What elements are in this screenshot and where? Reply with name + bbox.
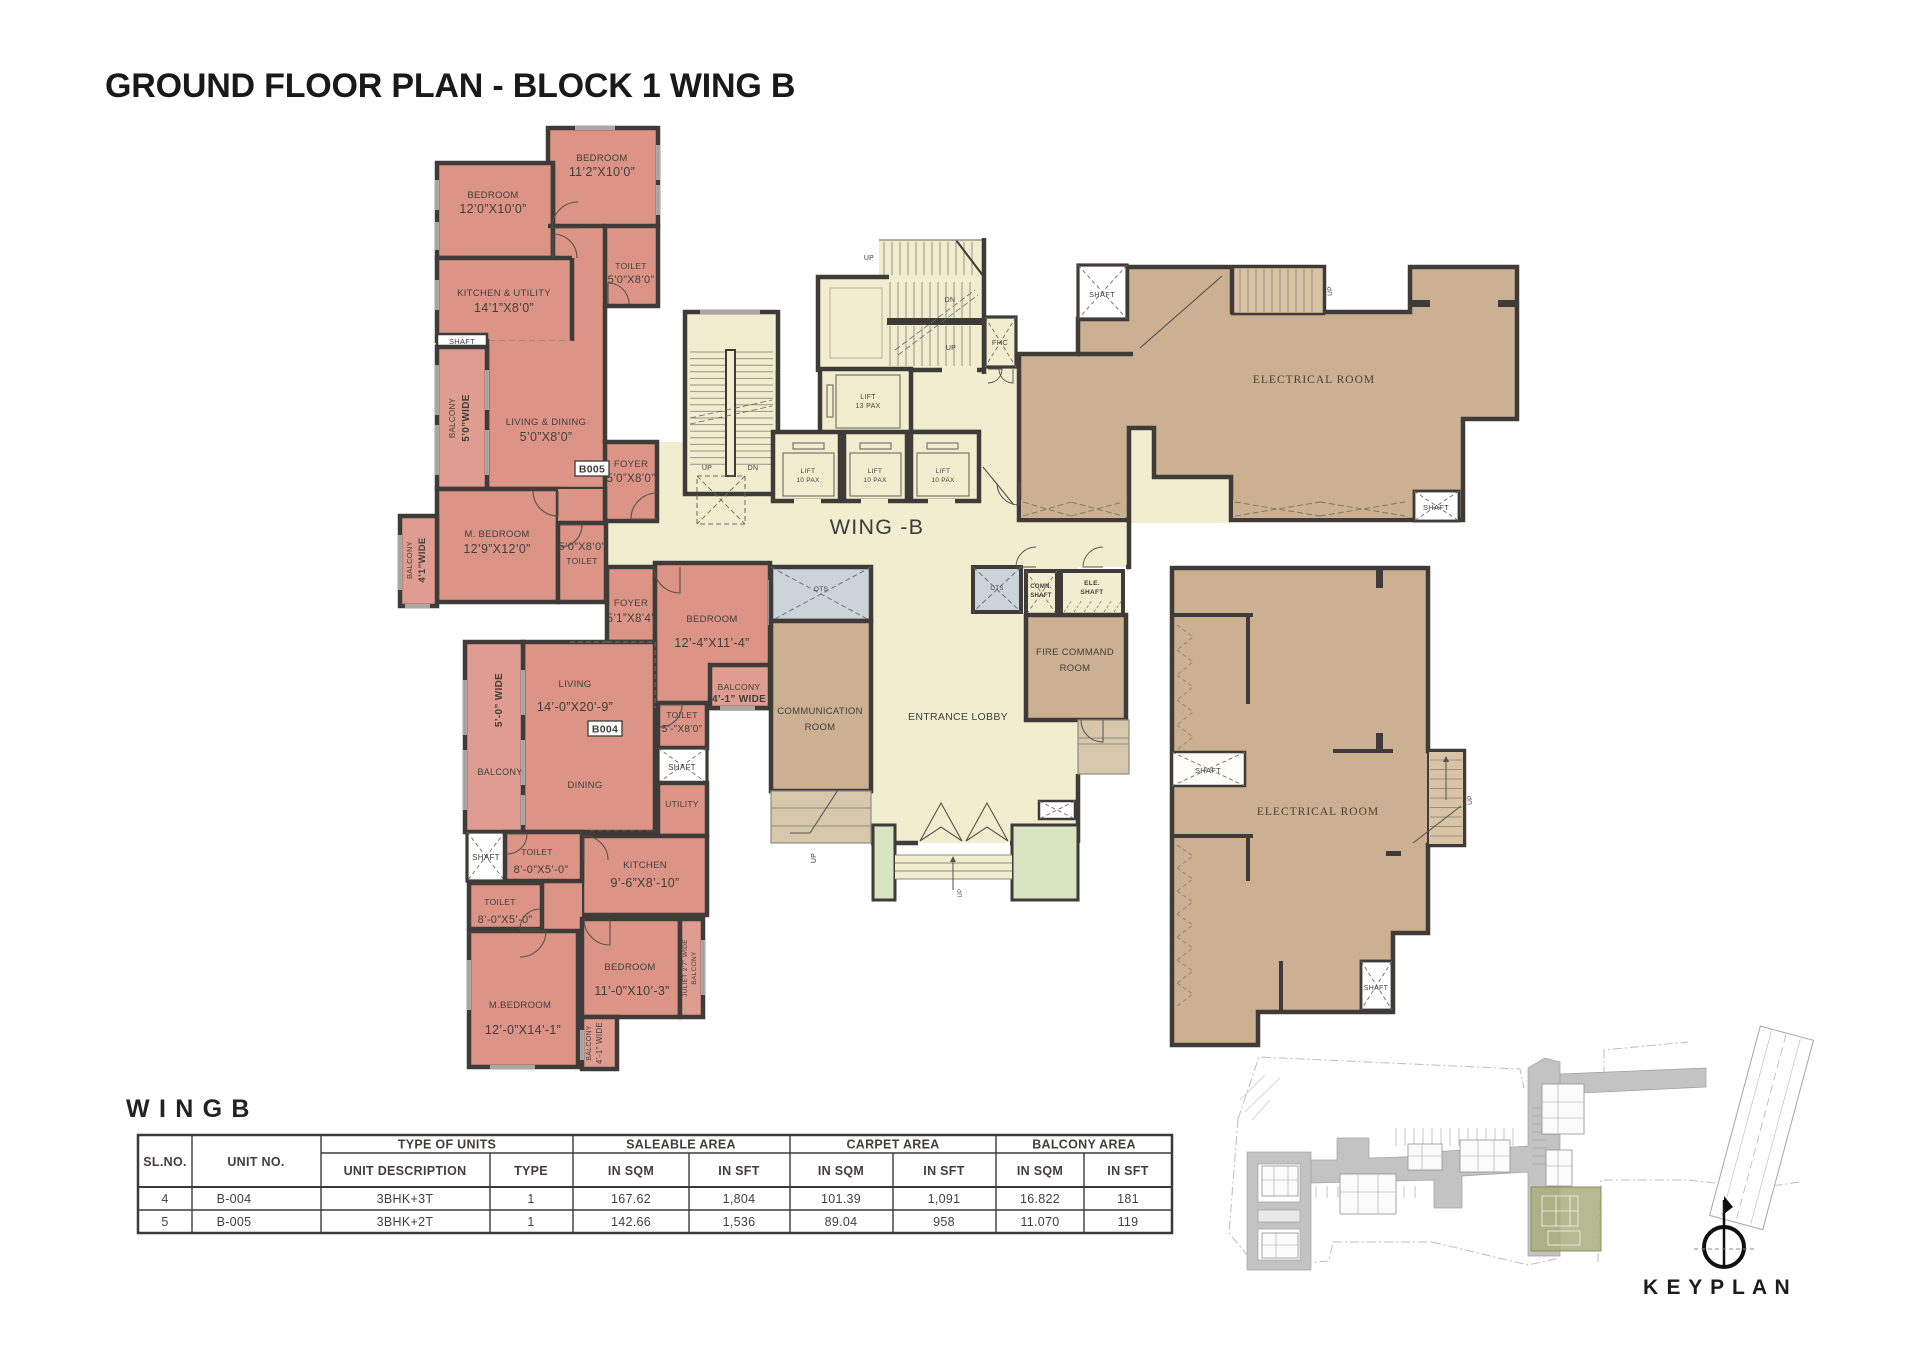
svg-text:LIVING: LIVING [559,679,592,690]
svg-text:ENTRANCE LOBBY: ENTRANCE LOBBY [908,711,1008,723]
svg-text:9’-6”X8’-10”: 9’-6”X8’-10” [611,876,680,890]
svg-text:1: 1 [527,1192,534,1206]
svg-text:TOILET: TOILET [615,261,646,271]
svg-text:TYPE OF UNITS: TYPE OF UNITS [398,1138,496,1152]
svg-text:UP: UP [864,255,874,262]
svg-text:SHAFT: SHAFT [1364,985,1389,992]
svg-text:BALCONY: BALCONY [586,1025,593,1061]
svg-text:IN SQM: IN SQM [818,1164,864,1178]
svg-text:UP: UP [811,853,818,863]
svg-text:TOILET: TOILET [521,847,552,857]
svg-text:10 PAX: 10 PAX [863,477,887,484]
svg-text:SALEABLE AREA: SALEABLE AREA [626,1138,736,1152]
svg-text:BEDROOM: BEDROOM [576,153,627,164]
svg-text:LIFT: LIFT [801,468,816,475]
svg-text:16.822: 16.822 [1020,1192,1060,1206]
svg-text:1,091: 1,091 [928,1192,961,1206]
svg-text:DN: DN [748,465,759,472]
svg-text:SHAFT: SHAFT [1080,589,1103,596]
svg-text:KITCHEN: KITCHEN [623,860,667,871]
svg-text:5’0”X8’0”: 5’0”X8’0” [520,430,573,444]
svg-text:8’-0”X5’-0”: 8’-0”X5’-0” [478,914,533,926]
svg-text:1: 1 [527,1215,534,1229]
svg-text:1,804: 1,804 [723,1192,756,1206]
svg-text:10 PAX: 10 PAX [796,477,820,484]
svg-text:ELE.: ELE. [1084,580,1100,587]
svg-text:142.66: 142.66 [611,1215,651,1229]
svg-text:4: 4 [161,1192,168,1206]
svg-text:5’-0” WIDE: 5’-0” WIDE [494,673,505,727]
svg-text:SHAFT: SHAFT [1089,290,1115,299]
svg-text:FIRE COMMAND: FIRE COMMAND [1036,647,1114,658]
svg-text:TOILET: TOILET [484,897,515,907]
svg-text:BEDROOM: BEDROOM [604,962,655,973]
svg-text:UNIT NO.: UNIT NO. [227,1155,284,1169]
svg-text:5’0”WIDE: 5’0”WIDE [461,394,472,441]
svg-text:11’-0”X10’-3”: 11’-0”X10’-3” [594,984,669,998]
svg-text:LIFT: LIFT [860,394,876,401]
svg-text:SHAFT: SHAFT [472,853,500,862]
svg-text:181: 181 [1117,1192,1139,1206]
svg-text:JULIET 2’7” WIDE: JULIET 2’7” WIDE [682,939,689,997]
svg-text:SHAFT: SHAFT [1195,766,1221,775]
svg-text:TOILET: TOILET [666,710,697,720]
svg-text:5’0”X8’0”: 5’0”X8’0” [559,541,606,553]
svg-text:FOYER: FOYER [614,459,648,470]
svg-text:UTILITY: UTILITY [665,799,699,809]
svg-text:IN SFT: IN SFT [1107,1164,1148,1178]
svg-text:OTS: OTS [814,586,829,593]
svg-text:11.070: 11.070 [1020,1215,1059,1229]
svg-text:OTS: OTS [990,586,1003,592]
svg-text:11’2”X10’0”: 11’2”X10’0” [569,165,635,179]
svg-text:B005: B005 [579,464,605,476]
svg-text:ELECTRICAL ROOM: ELECTRICAL ROOM [1253,374,1375,386]
svg-text:12’9”X12’0”: 12’9”X12’0” [463,542,530,556]
svg-text:BALCONY AREA: BALCONY AREA [1032,1138,1136,1152]
svg-text:119: 119 [1118,1215,1139,1229]
svg-text:FHC: FHC [992,338,1009,347]
svg-text:LIFT: LIFT [868,468,883,475]
svg-text:M.BEDROOM: M.BEDROOM [489,1000,551,1011]
svg-text:UP: UP [1327,286,1334,296]
svg-text:UP: UP [946,345,956,352]
svg-text:B-005: B-005 [217,1215,252,1229]
svg-text:IN SFT: IN SFT [923,1164,964,1178]
svg-text:3BHK+2T: 3BHK+2T [377,1215,434,1229]
svg-text:COMN.: COMN. [1030,584,1052,590]
svg-text:10 PAX: 10 PAX [931,477,955,484]
svg-text:W I N G B: W I N G B [126,1095,251,1123]
svg-text:1,536: 1,536 [723,1215,756,1229]
svg-text:14’1”X8’0”: 14’1”X8’0” [474,301,534,315]
svg-text:B004: B004 [592,724,618,736]
svg-text:M. BEDROOM: M. BEDROOM [464,529,529,540]
svg-text:12’-0”X14’-1”: 12’-0”X14’-1” [485,1023,561,1037]
svg-text:SL.NO.: SL.NO. [143,1155,186,1169]
svg-text:BALCONY: BALCONY [405,541,414,579]
svg-text:12’-4”X11’-4”: 12’-4”X11’-4” [674,636,749,650]
svg-text:UP: UP [958,889,964,898]
svg-text:101.39: 101.39 [821,1192,861,1206]
svg-text:SHAFT: SHAFT [449,337,475,346]
svg-text:KITCHEN & UTILITY: KITCHEN & UTILITY [457,288,551,299]
svg-text:GROUND FLOOR PLAN - BLOCK 1 WI: GROUND FLOOR PLAN - BLOCK 1 WING B [105,67,795,105]
svg-text:8’-0”X5’-0”: 8’-0”X5’-0” [514,864,569,876]
svg-text:DN: DN [945,297,956,304]
svg-text:ELECTRICAL ROOM: ELECTRICAL ROOM [1257,806,1379,818]
svg-text:FOYER: FOYER [614,598,648,609]
svg-text:4’-1” WIDE: 4’-1” WIDE [595,1022,604,1064]
svg-text:958: 958 [933,1215,955,1229]
svg-text:K E Y P L A N: K E Y P L A N [1643,1276,1791,1299]
svg-text:LIVING & DINING: LIVING & DINING [506,417,587,428]
svg-text:COMMUNICATION: COMMUNICATION [777,706,863,717]
svg-text:13 PAX: 13 PAX [855,403,880,410]
svg-text:IN SQM: IN SQM [608,1164,654,1178]
svg-text:SHAFT: SHAFT [668,763,696,772]
svg-text:5’1”X8’4”: 5’1”X8’4” [607,613,656,625]
svg-text:SHAFT: SHAFT [1423,503,1449,512]
svg-text:UP: UP [1467,795,1474,805]
svg-text:IN SFT: IN SFT [718,1164,759,1178]
svg-text:CARPET AREA: CARPET AREA [846,1138,939,1152]
svg-text:5: 5 [161,1215,168,1229]
svg-text:WING -B: WING -B [830,515,924,539]
svg-text:12’0”X10’0”: 12’0”X10’0” [459,202,526,216]
svg-text:BALCONY: BALCONY [691,951,698,985]
svg-text:IN SQM: IN SQM [1017,1164,1063,1178]
svg-text:4’-1” WIDE: 4’-1” WIDE [712,694,766,705]
svg-text:ROOM: ROOM [805,722,836,733]
svg-text:3BHK+3T: 3BHK+3T [377,1192,434,1206]
svg-text:5’0”X8’0”: 5’0”X8’0” [607,473,656,485]
svg-text:TYPE: TYPE [514,1164,548,1178]
svg-text:14’-0”X20’-9”: 14’-0”X20’-9” [537,700,613,714]
svg-text:UP: UP [702,465,712,472]
svg-text:4’1”WIDE: 4’1”WIDE [417,537,428,582]
svg-text:89.04: 89.04 [825,1215,858,1229]
svg-text:TOILET: TOILET [566,556,597,566]
svg-text:BALCONY: BALCONY [718,682,761,692]
svg-text:UNIT DESCRIPTION: UNIT DESCRIPTION [344,1164,467,1178]
svg-text:167.62: 167.62 [611,1192,651,1206]
svg-text:BALCONY: BALCONY [477,767,522,777]
svg-text:SHAFT: SHAFT [1030,593,1052,599]
svg-text:B-004: B-004 [217,1192,252,1206]
svg-text:BEDROOM: BEDROOM [467,190,518,201]
svg-text:ROOM: ROOM [1060,663,1091,674]
svg-text:DINING: DINING [567,780,602,791]
svg-text:LIFT: LIFT [936,468,951,475]
svg-text:BALCONY: BALCONY [448,397,457,438]
svg-text:BEDROOM: BEDROOM [686,614,737,625]
